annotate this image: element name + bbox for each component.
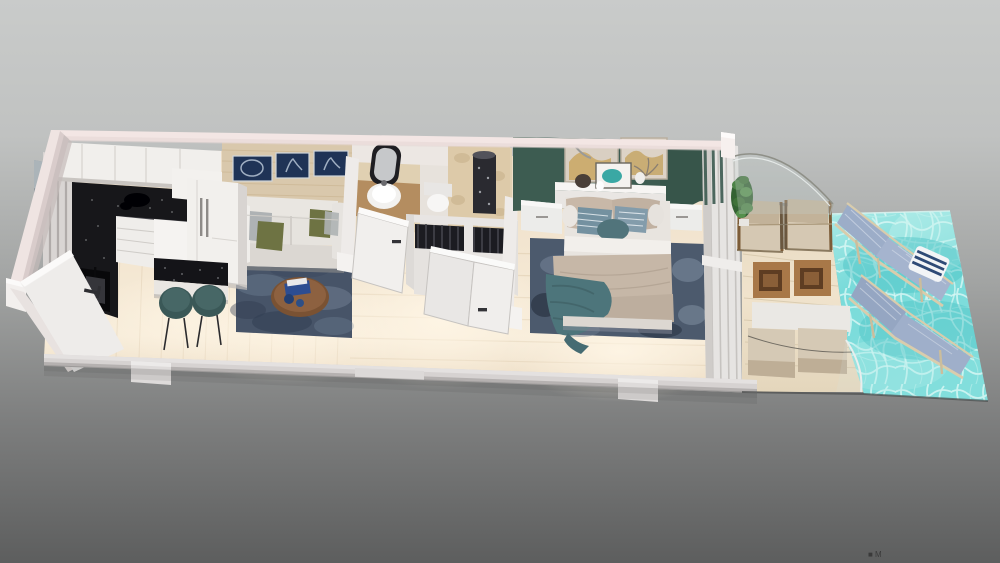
svg-text:■ M: ■ M bbox=[868, 550, 882, 559]
